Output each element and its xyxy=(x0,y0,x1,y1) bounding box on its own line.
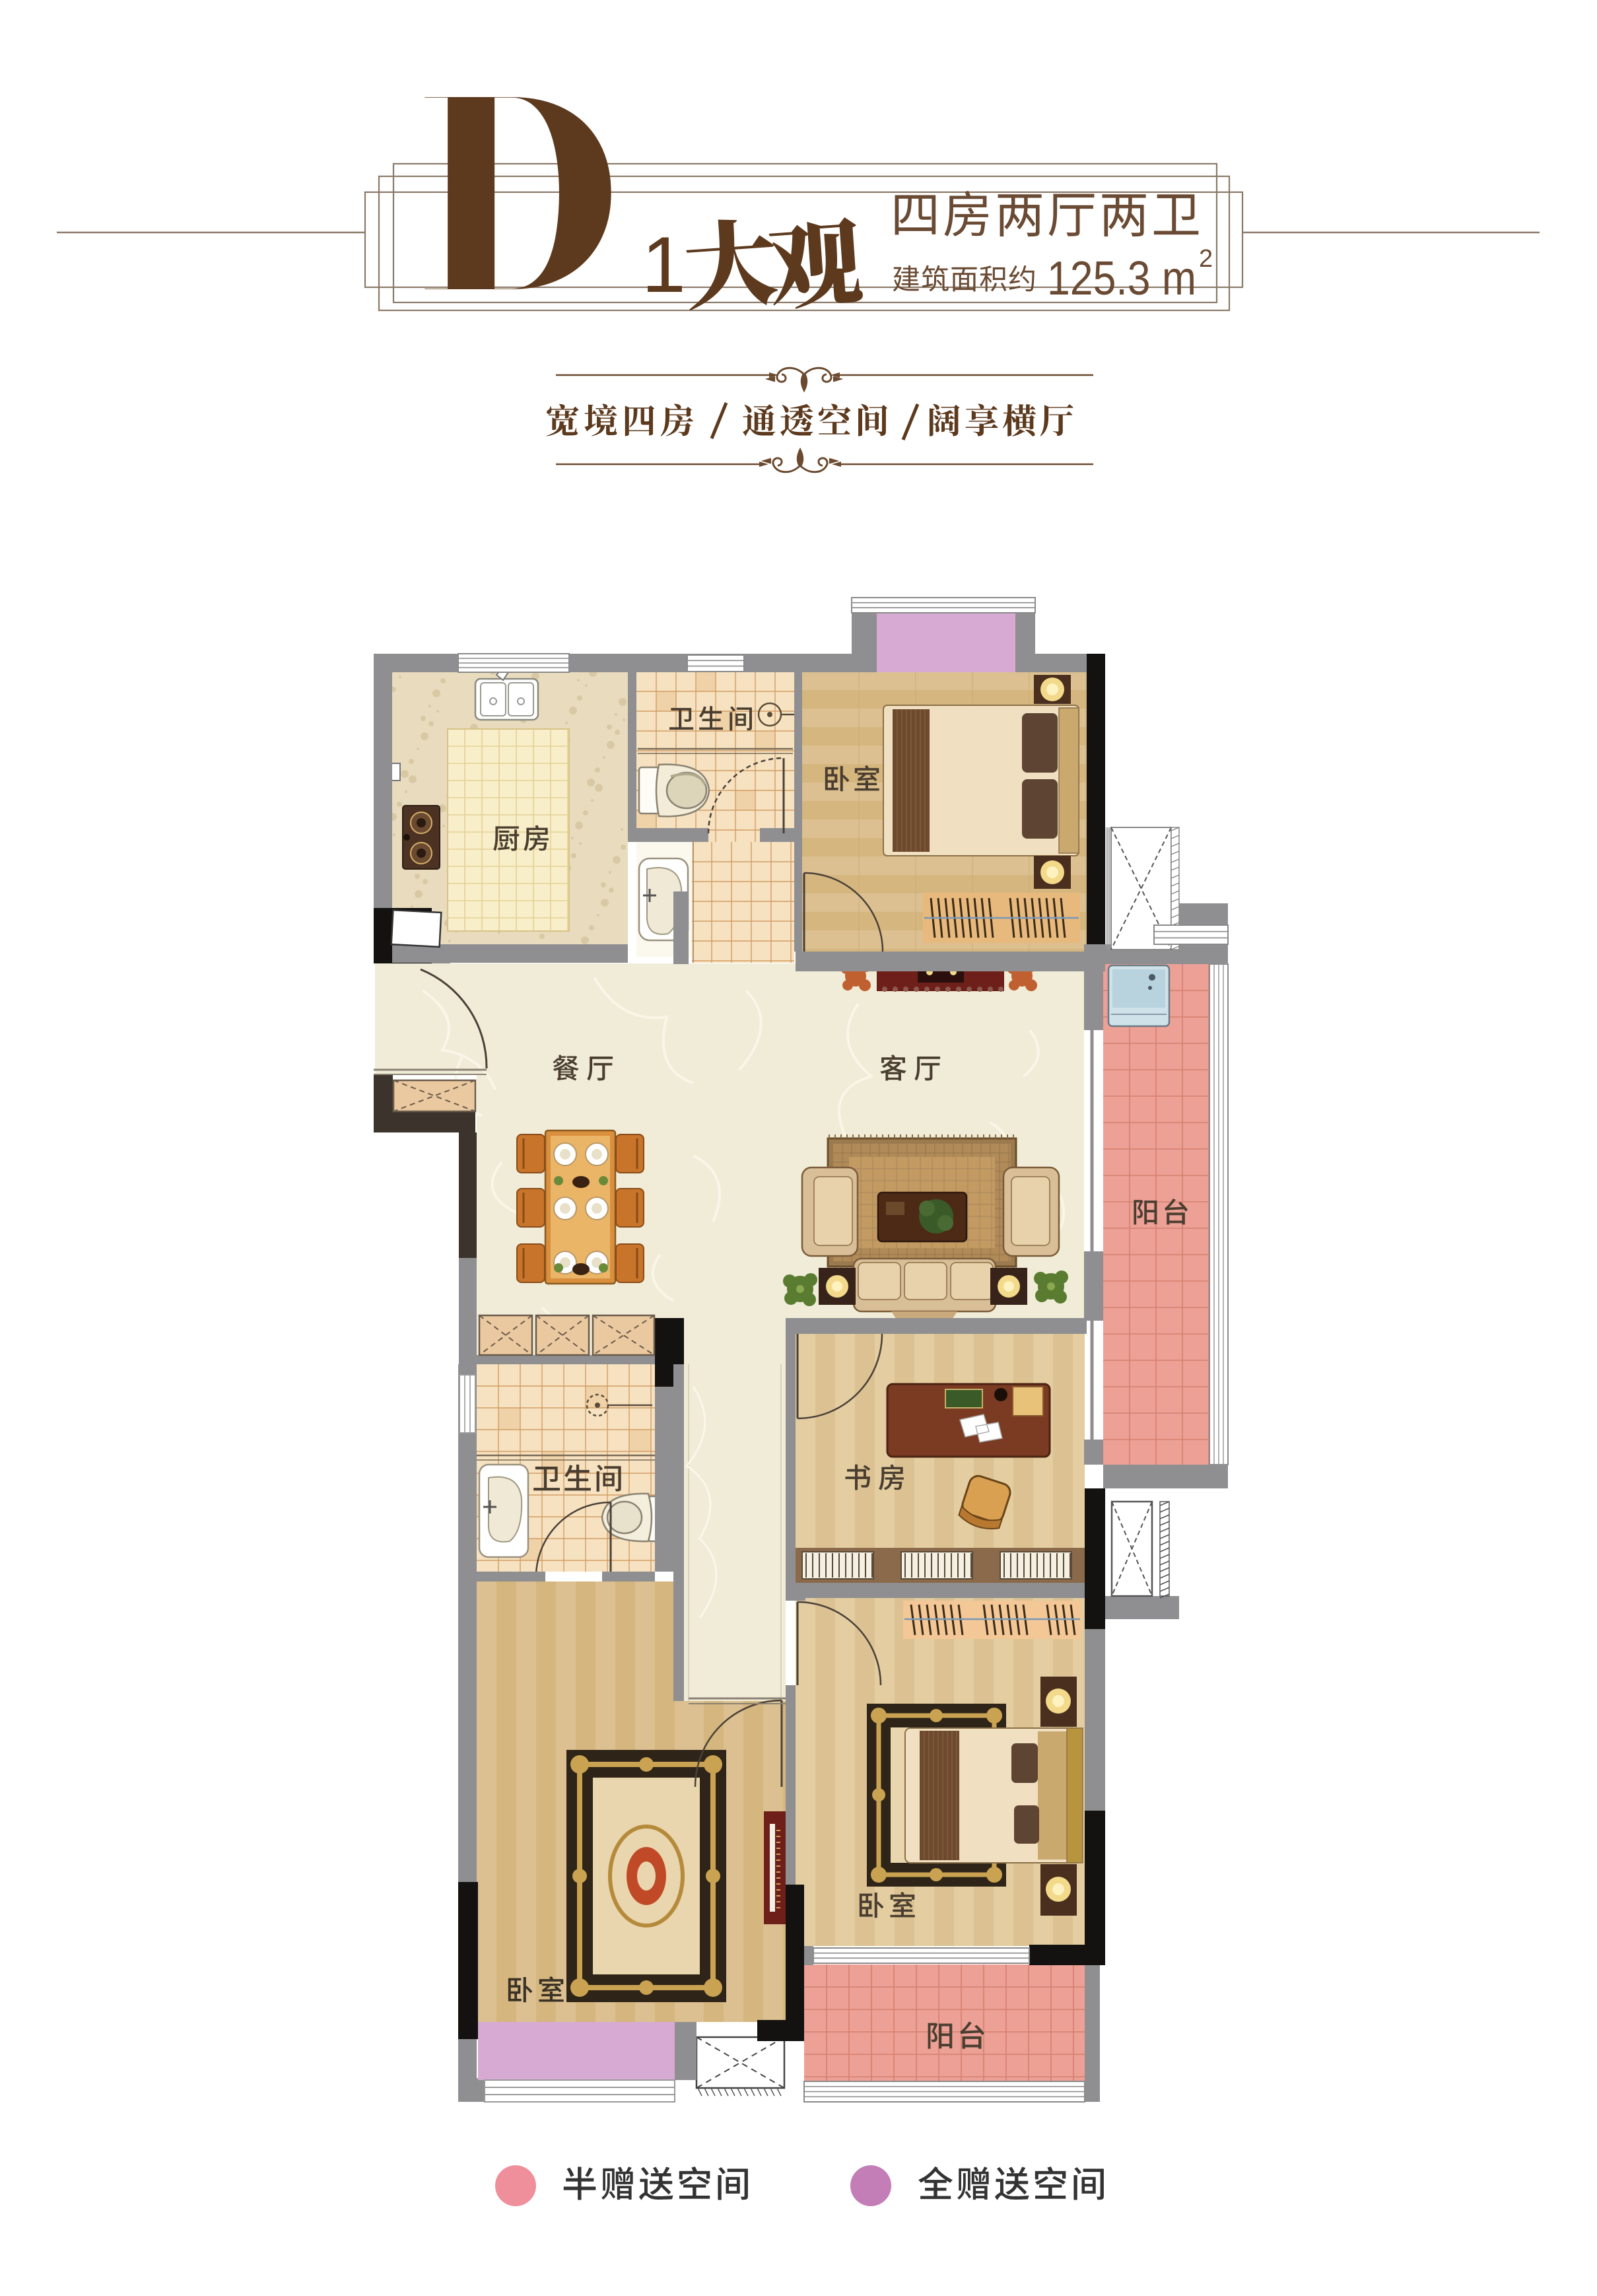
svg-text:125.3 m: 125.3 m xyxy=(1047,252,1196,305)
svg-text:1: 1 xyxy=(642,221,686,309)
svg-text:2: 2 xyxy=(1199,245,1213,273)
